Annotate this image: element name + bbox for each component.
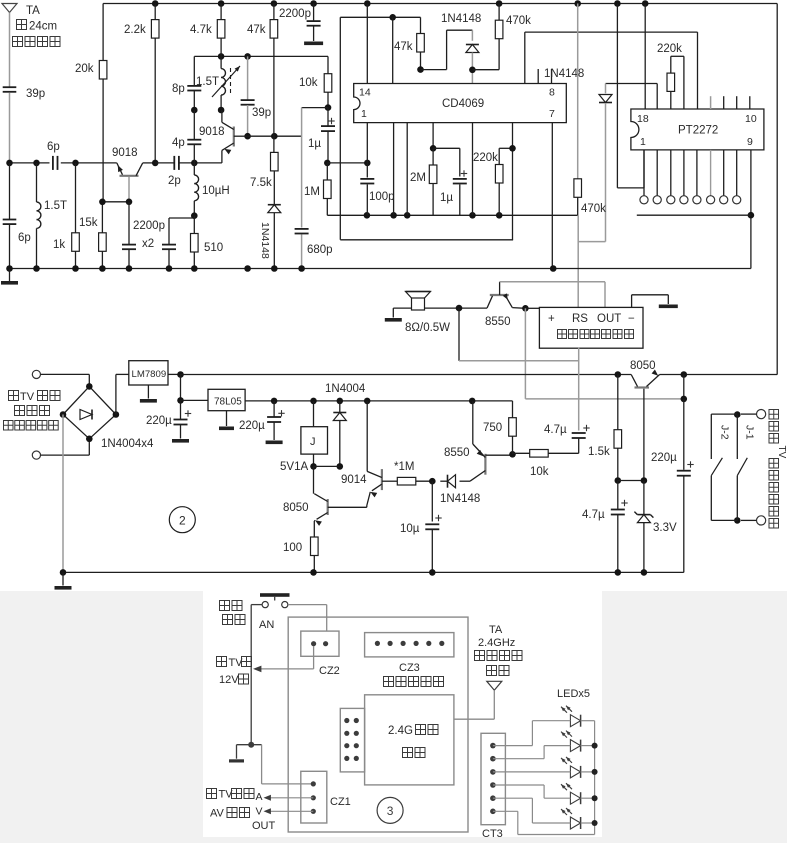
svg-text:39p: 39p: [252, 107, 271, 119]
svg-text:1N4148: 1N4148: [259, 222, 271, 259]
svg-text:220µ: 220µ: [146, 415, 172, 427]
svg-text:5V1A: 5V1A: [280, 461, 308, 473]
svg-text:6p: 6p: [47, 141, 60, 153]
svg-text:4.7µ: 4.7µ: [582, 509, 605, 521]
svg-text:J: J: [310, 436, 316, 448]
svg-text:4p: 4p: [172, 137, 185, 149]
svg-text:7: 7: [549, 108, 555, 120]
svg-text:TV: TV: [20, 391, 35, 403]
svg-text:A: A: [256, 791, 263, 803]
svg-text:1N4004x4: 1N4004x4: [101, 438, 154, 450]
svg-text:14: 14: [359, 87, 371, 99]
svg-text:39p: 39p: [26, 88, 45, 100]
svg-text:CZ3: CZ3: [399, 662, 420, 674]
svg-text:1µ: 1µ: [308, 138, 321, 150]
svg-text:220k: 220k: [657, 43, 682, 55]
svg-text:TA: TA: [489, 624, 503, 636]
svg-text:9018: 9018: [112, 147, 138, 159]
svg-text:CZ1: CZ1: [330, 796, 351, 808]
svg-text:24cm: 24cm: [29, 21, 57, 33]
svg-text:1k: 1k: [53, 239, 65, 251]
svg-text:1N4148: 1N4148: [441, 13, 481, 25]
svg-text:1: 1: [640, 136, 646, 148]
svg-text:2.4G: 2.4G: [388, 725, 413, 737]
svg-text:100: 100: [283, 542, 302, 554]
svg-text:10µ: 10µ: [400, 523, 420, 535]
svg-text:9018: 9018: [199, 126, 225, 138]
svg-text:47k: 47k: [394, 41, 413, 53]
svg-text:220µ: 220µ: [651, 452, 677, 464]
svg-text:1M: 1M: [304, 186, 320, 198]
svg-text:PT2272: PT2272: [678, 125, 718, 137]
svg-text:J-1: J-1: [744, 425, 756, 440]
svg-text:CZ2: CZ2: [319, 665, 340, 677]
svg-text:2.2k: 2.2k: [124, 24, 146, 36]
svg-text:*1M: *1M: [394, 461, 414, 473]
svg-text:4.7µ: 4.7µ: [544, 424, 567, 436]
svg-text:15k: 15k: [79, 217, 98, 229]
svg-text:10: 10: [745, 113, 757, 125]
svg-text:8050: 8050: [283, 502, 309, 514]
svg-text:470k: 470k: [581, 203, 606, 215]
svg-text:1.5T: 1.5T: [196, 76, 219, 88]
svg-text:9: 9: [747, 136, 753, 148]
svg-text:1: 1: [361, 108, 367, 120]
svg-text:9014: 9014: [341, 474, 367, 486]
svg-text:−: −: [628, 313, 635, 325]
svg-text:220µ: 220µ: [239, 420, 265, 432]
svg-text:78L05: 78L05: [214, 397, 242, 408]
svg-text:8p: 8p: [172, 83, 185, 95]
svg-text:RS: RS: [572, 313, 588, 325]
svg-text:8550: 8550: [444, 447, 470, 459]
svg-text:AN: AN: [259, 619, 274, 631]
svg-text:4.7k: 4.7k: [190, 24, 212, 36]
svg-text:x2: x2: [142, 238, 154, 250]
svg-text:20k: 20k: [75, 63, 94, 75]
svg-text:TA: TA: [26, 5, 40, 17]
svg-text:10µH: 10µH: [202, 185, 230, 197]
svg-text:1.5T: 1.5T: [44, 200, 67, 212]
svg-text:510: 510: [204, 242, 223, 254]
svg-text:2200p: 2200p: [133, 220, 165, 232]
svg-text:LM7809: LM7809: [132, 369, 167, 380]
svg-text:1.5k: 1.5k: [588, 446, 610, 458]
svg-text:1N4148: 1N4148: [440, 493, 480, 505]
svg-text:2: 2: [179, 514, 186, 528]
svg-text:J-2: J-2: [719, 425, 731, 440]
svg-text:V: V: [256, 806, 263, 818]
svg-text:750: 750: [483, 422, 502, 434]
svg-text:18: 18: [637, 113, 649, 125]
svg-text:CT3: CT3: [482, 828, 503, 840]
svg-text:12V: 12V: [219, 674, 239, 686]
svg-text:2p: 2p: [168, 175, 181, 187]
svg-text:AV: AV: [210, 808, 225, 820]
svg-text:2200p: 2200p: [279, 8, 311, 20]
svg-text:7.5k: 7.5k: [250, 177, 272, 189]
svg-text:47k: 47k: [247, 24, 266, 36]
svg-text:+: +: [548, 313, 555, 325]
svg-text:CD4069: CD4069: [442, 98, 484, 110]
svg-text:10k: 10k: [299, 77, 318, 89]
svg-text:8: 8: [549, 87, 555, 99]
svg-text:OUT: OUT: [597, 313, 621, 325]
svg-text:3.3V: 3.3V: [653, 522, 677, 534]
svg-text:TV: TV: [776, 446, 787, 459]
svg-text:1N4004: 1N4004: [325, 383, 366, 395]
svg-text:1µ: 1µ: [440, 192, 453, 204]
svg-text:OUT: OUT: [252, 820, 276, 832]
svg-text:470k: 470k: [506, 15, 531, 27]
svg-text:2M: 2M: [410, 172, 426, 184]
svg-text:3: 3: [387, 804, 394, 818]
svg-text:100p: 100p: [369, 191, 395, 203]
svg-text:10k: 10k: [530, 466, 549, 478]
svg-text:LEDx5: LEDx5: [557, 688, 590, 700]
svg-text:8Ω/0.5W: 8Ω/0.5W: [405, 322, 450, 334]
svg-text:2.4GHz: 2.4GHz: [478, 637, 515, 649]
svg-text:8550: 8550: [485, 316, 511, 328]
svg-text:6p: 6p: [18, 232, 31, 244]
svg-text:8050: 8050: [630, 360, 656, 372]
svg-text:220k: 220k: [473, 152, 498, 164]
svg-text:680p: 680p: [307, 244, 333, 256]
